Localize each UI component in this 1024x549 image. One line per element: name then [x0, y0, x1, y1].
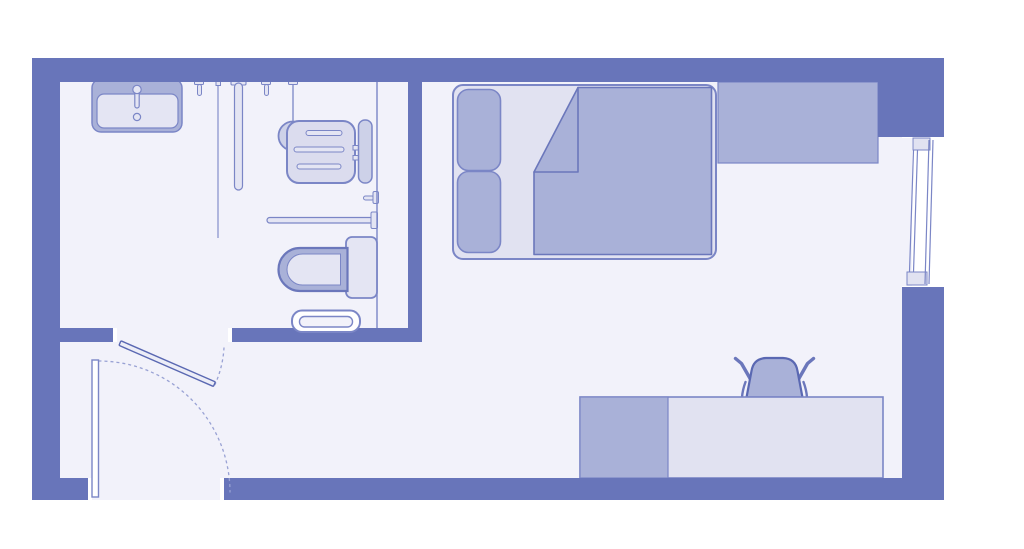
sink-drain — [133, 113, 140, 120]
wall-right-upper-pier — [878, 58, 944, 137]
rail-rod — [235, 83, 243, 190]
pillow — [458, 172, 501, 253]
toilet-cistern — [346, 237, 377, 298]
hook-icon — [265, 85, 269, 96]
shower-seat — [287, 120, 372, 183]
towel-rail — [292, 311, 360, 333]
window-glass-line — [925, 140, 929, 284]
wall-right-lower — [902, 287, 944, 500]
wall-bathroom-partition — [408, 82, 422, 342]
entrance-opening-floor — [88, 478, 224, 500]
toilet-bowl-inner — [287, 254, 341, 285]
sink-tap — [133, 85, 141, 93]
hook-icon — [198, 85, 202, 96]
jamb-cap — [113, 328, 117, 342]
sink-tap-stem — [135, 92, 139, 108]
desk — [580, 397, 883, 478]
seat-slat — [294, 147, 344, 152]
desk-pedestal — [580, 397, 668, 478]
wall-bottom-left-stub — [60, 478, 92, 500]
grab-bar-rod — [267, 218, 373, 224]
valve-stem — [364, 196, 375, 200]
bed — [453, 85, 716, 259]
wardrobe — [718, 82, 878, 163]
pillow — [458, 90, 501, 171]
window-frame-bottom — [907, 272, 927, 285]
floor-plan-canvas — [0, 0, 1024, 549]
door-leaf — [92, 360, 99, 497]
seat-slat — [297, 164, 341, 169]
window-glass-line — [914, 150, 918, 272]
jamb-cap — [228, 328, 232, 342]
window-frame-top — [913, 138, 930, 150]
window-glass-line — [929, 140, 933, 284]
towel-rail-inner — [300, 317, 353, 328]
chair-seat — [747, 358, 803, 398]
wall-top — [32, 58, 944, 82]
window-recess-floor — [902, 138, 912, 286]
wall-bottom — [220, 478, 944, 500]
wall-bathroom-south-left — [60, 328, 117, 342]
sink — [92, 79, 182, 132]
jamb-cap — [220, 478, 224, 500]
floor-plan-drawing — [0, 0, 1024, 549]
seat-slat — [306, 131, 342, 136]
wall-left — [32, 58, 60, 500]
seat-backrest — [359, 120, 373, 183]
